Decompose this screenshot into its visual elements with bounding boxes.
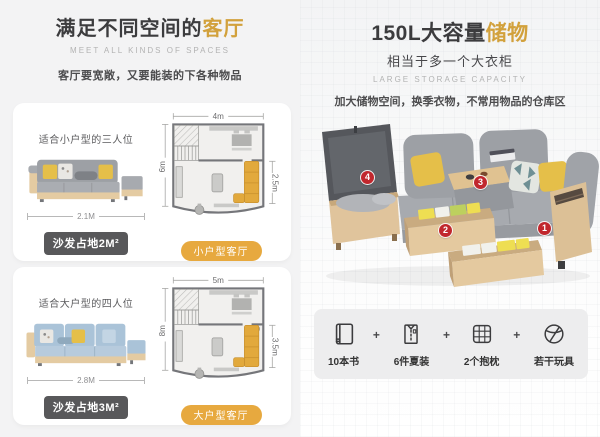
storage-capacity-section: 150L大容量储物 相当于多一个大衣柜 LARGE STORAGE CAPACI… [300, 0, 600, 437]
capacity-item-label: 2个抱枕 [464, 353, 500, 368]
capacity-item-books: 10本书 [328, 321, 359, 368]
plan-width-label: 5m [213, 276, 224, 285]
left-header: 满足不同空间的客厅 MEET ALL KINDS OF SPACES 客厅要宽敞… [0, 0, 300, 83]
right-title-accent: 储物 [486, 22, 529, 45]
large-sofa-column: 适合大户型的四人位 [19, 271, 153, 425]
left-title: 满足不同空间的客厅 [0, 12, 300, 41]
plan-width-label: 4m [213, 112, 224, 121]
dimension-line [27, 380, 73, 381]
sofa-width-dimension: 2.8M [27, 376, 145, 385]
storage-marker-4: 4 [361, 171, 374, 184]
plus-sign: + [443, 328, 450, 361]
large-room-card: 适合大户型的四人位 [13, 267, 291, 425]
blue-sofa-illustration [25, 319, 147, 367]
small-floor-plan: 4m 6m 2.5m [158, 109, 284, 237]
large-floor-plan: 5m 8m 3.5m [158, 273, 284, 401]
capacity-item-clothes: 6件夏装 [394, 321, 430, 368]
plus-sign: + [513, 328, 520, 361]
storage-marker-1: 1 [538, 222, 551, 235]
living-room-fit-section: 满足不同空间的客厅 MEET ALL KINDS OF SPACES 客厅要宽敞… [0, 0, 300, 437]
capacity-item-label: 若干玩具 [534, 353, 574, 368]
storage-marker-3: 3 [474, 176, 487, 189]
sofa-width-value: 2.8M [73, 376, 99, 385]
dimension-line [99, 380, 145, 381]
plan-sofa-length-label: 2.5m [270, 174, 279, 192]
fit-label: 适合小户型的三人位 [19, 131, 153, 146]
room-type-tag: 小户型客厅 [181, 241, 262, 261]
book-icon [331, 321, 357, 347]
shirt-icon [398, 321, 424, 347]
gray-sofa-illustration [27, 155, 145, 203]
capacity-item-label: 10本书 [328, 353, 359, 368]
area-badge: 沙发占地2M² [44, 232, 128, 255]
right-subtitle: 相当于多一个大衣柜 [300, 51, 600, 70]
right-header: 150L大容量储物 相当于多一个大衣柜 LARGE STORAGE CAPACI… [300, 0, 600, 109]
pillow-icon [469, 321, 495, 347]
fit-label: 适合大户型的四人位 [19, 295, 153, 310]
right-title: 150L大容量储物 [300, 17, 600, 47]
small-plan-column: 4m 6m 2.5m 小户型客厅 [153, 107, 289, 261]
storage-sofa-stage: 1 2 3 4 [300, 104, 600, 304]
storage-sofa-illustration [300, 104, 600, 304]
dimension-line [27, 216, 73, 217]
plan-height-label: 6m [158, 161, 167, 172]
left-title-prefix: 满足不同空间的 [56, 18, 203, 40]
capacity-item-label: 6件夏装 [394, 353, 430, 368]
right-subtitle-en: LARGE STORAGE CAPACITY [300, 75, 600, 84]
storage-marker-2: 2 [439, 224, 452, 237]
small-room-card: 适合小户型的三人位 [13, 103, 291, 261]
capacity-item-toys: 若干玩具 [534, 321, 574, 368]
left-title-accent: 客厅 [203, 18, 245, 40]
right-title-prefix: 150L大容量 [371, 22, 485, 45]
ball-icon [541, 321, 567, 347]
area-badge: 沙发占地3M² [44, 396, 128, 419]
product-infographic: 满足不同空间的客厅 MEET ALL KINDS OF SPACES 客厅要宽敞… [0, 0, 600, 437]
large-plan-column: 5m 8m 3.5m 大户型客厅 [153, 271, 289, 425]
left-subtitle-en: MEET ALL KINDS OF SPACES [0, 46, 300, 55]
plan-height-label: 8m [158, 325, 167, 336]
capacity-item-pillows: 2个抱枕 [464, 321, 500, 368]
sofa-width-value: 2.1M [73, 212, 99, 221]
capacity-items-panel: 10本书 + 6件夏装 + [314, 309, 588, 379]
plan-sofa-length-label: 3.5m [270, 338, 279, 356]
room-type-tag: 大户型客厅 [181, 405, 262, 425]
dimension-line [99, 216, 145, 217]
left-description: 客厅要宽敞，又要能装的下各种物品 [0, 67, 300, 83]
plus-sign: + [373, 328, 380, 361]
small-sofa-column: 适合小户型的三人位 [19, 107, 153, 261]
sofa-width-dimension: 2.1M [27, 212, 145, 221]
